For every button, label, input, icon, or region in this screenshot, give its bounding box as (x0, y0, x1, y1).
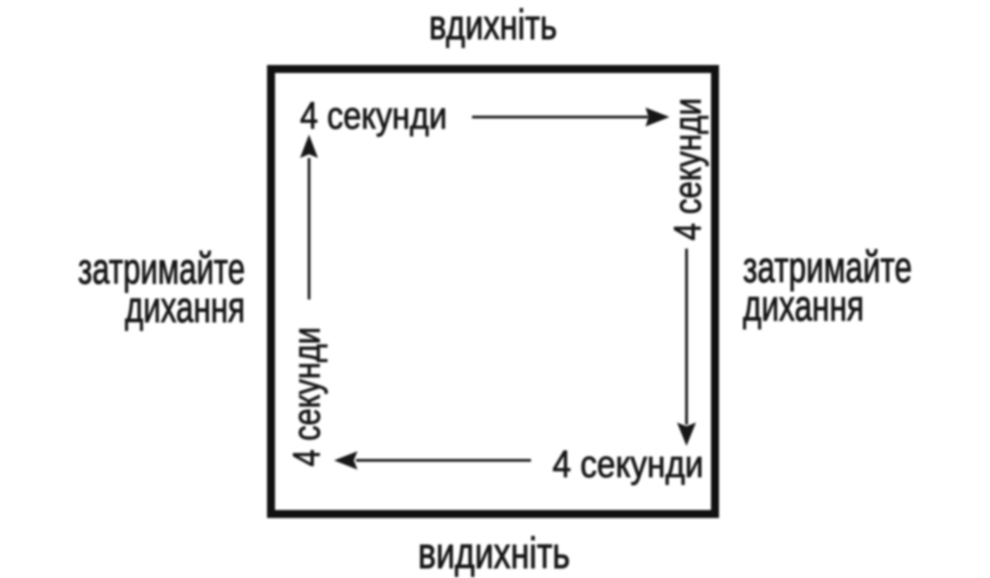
svg-text:4 секунди: 4 секунди (553, 444, 704, 486)
svg-text:4 секунди: 4 секунди (668, 98, 710, 241)
svg-text:4 секунди: 4 секунди (300, 96, 447, 138)
svg-text:видихніть: видихніть (418, 529, 570, 578)
svg-text:вдихніть: вдихніть (429, 1, 557, 48)
svg-text:дихання: дихання (743, 282, 864, 331)
svg-text:дихання: дихання (125, 283, 245, 332)
svg-text:4 секунди: 4 секунди (287, 327, 329, 467)
